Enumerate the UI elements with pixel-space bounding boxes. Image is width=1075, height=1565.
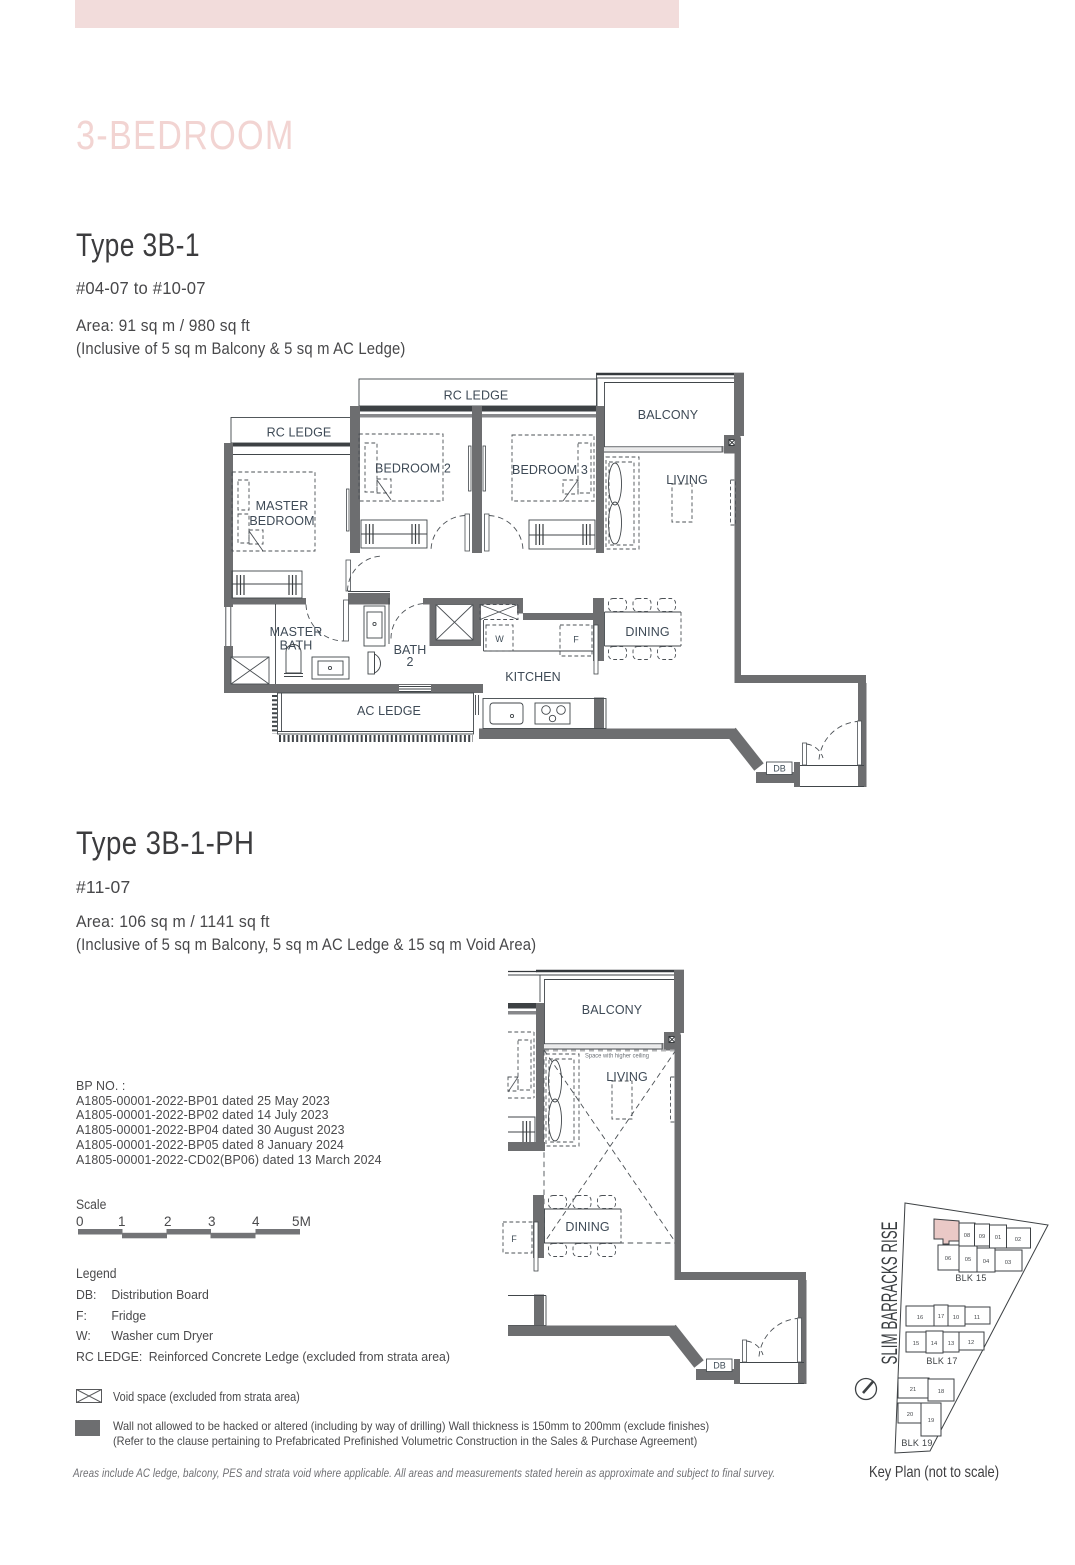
svg-text:MASTER: MASTER [270, 625, 323, 639]
svg-text:05: 05 [965, 1257, 971, 1263]
svg-text:18: 18 [938, 1389, 944, 1395]
svg-text:09: 09 [979, 1234, 985, 1240]
svg-text:MASTER: MASTER [256, 499, 309, 513]
svg-text:04: 04 [983, 1259, 990, 1265]
svg-text:RC LEDGE: RC LEDGE [444, 389, 509, 403]
svg-text:02: 02 [1015, 1237, 1021, 1243]
svg-text:10: 10 [953, 1315, 959, 1321]
svg-text:BALCONY: BALCONY [582, 1003, 643, 1017]
svg-text:F: F [573, 635, 579, 645]
svg-text:LIVING: LIVING [606, 1070, 648, 1084]
svg-text:03: 03 [1005, 1260, 1011, 1266]
svg-text:BEDROOM 3: BEDROOM 3 [512, 463, 588, 477]
svg-text:14: 14 [931, 1341, 938, 1347]
svg-text:F: F [511, 1234, 517, 1244]
svg-text:BLK 15: BLK 15 [955, 1273, 986, 1283]
svg-text:RC LEDGE: RC LEDGE [267, 426, 332, 440]
svg-text:Space with higher ceiling: Space with higher ceiling [585, 1053, 649, 1060]
svg-text:BEDROOM 2: BEDROOM 2 [375, 462, 451, 476]
svg-text:KITCHEN: KITCHEN [505, 670, 561, 684]
svg-text:DINING: DINING [625, 625, 669, 639]
svg-text:17: 17 [938, 1314, 944, 1320]
svg-text:BEDROOM: BEDROOM [249, 514, 314, 528]
svg-text:19: 19 [928, 1418, 934, 1424]
svg-text:01: 01 [995, 1235, 1001, 1241]
svg-text:W: W [495, 634, 504, 644]
svg-text:20: 20 [907, 1412, 913, 1418]
svg-text:LIVING: LIVING [666, 473, 708, 487]
svg-text:2: 2 [406, 655, 413, 669]
svg-text:AC LEDGE: AC LEDGE [357, 704, 421, 718]
svg-text:BLK 19: BLK 19 [901, 1438, 932, 1448]
svg-text:Key Plan (not to scale): Key Plan (not to scale) [869, 1464, 999, 1481]
svg-text:DB: DB [773, 764, 786, 774]
svg-text:BALCONY: BALCONY [638, 408, 699, 422]
svg-text:13: 13 [948, 1341, 954, 1347]
svg-text:21: 21 [910, 1387, 916, 1393]
svg-text:SLIM BARRACKS RISE: SLIM BARRACKS RISE [877, 1222, 902, 1365]
svg-text:06: 06 [945, 1256, 951, 1262]
svg-text:BATH: BATH [280, 639, 313, 653]
svg-text:12: 12 [968, 1340, 974, 1346]
svg-text:11: 11 [974, 1315, 980, 1321]
svg-text:15: 15 [913, 1341, 919, 1347]
svg-text:BLK 17: BLK 17 [926, 1356, 957, 1366]
svg-text:08: 08 [964, 1233, 970, 1239]
svg-text:DB: DB [713, 1361, 726, 1371]
svg-text:DINING: DINING [565, 1220, 609, 1234]
svg-text:16: 16 [917, 1315, 923, 1321]
